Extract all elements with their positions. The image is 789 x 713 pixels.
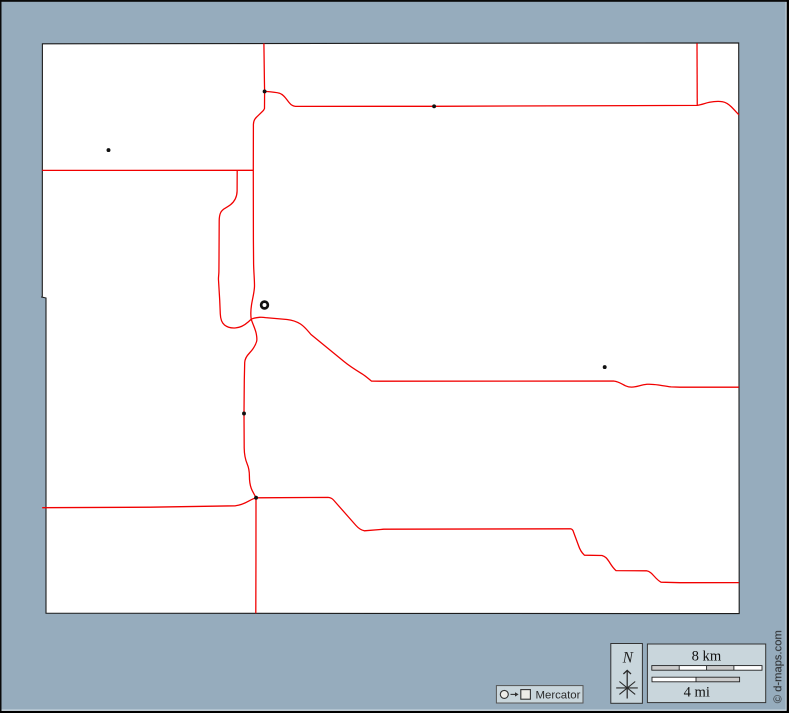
- svg-text:N: N: [622, 649, 635, 666]
- svg-text:Mercator: Mercator: [536, 690, 581, 702]
- svg-text:© d-maps.com: © d-maps.com: [772, 630, 784, 703]
- svg-text:8 km: 8 km: [692, 649, 722, 665]
- svg-text:4 mi: 4 mi: [684, 685, 710, 701]
